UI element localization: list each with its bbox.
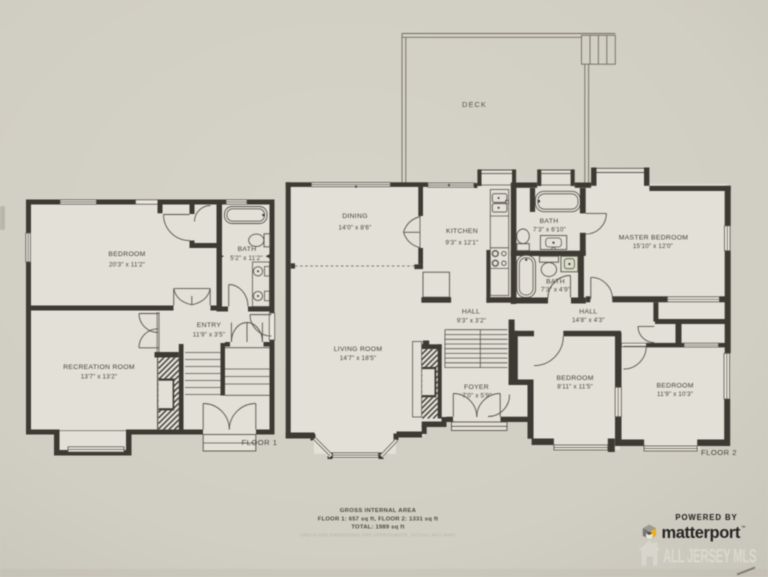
svg-text:BEDROOM: BEDROOM xyxy=(108,251,145,258)
svg-text:15'10" x 12'0": 15'10" x 12'0" xyxy=(633,243,673,250)
svg-text:FLOOR 1: FLOOR 1 xyxy=(242,438,278,447)
svg-text:5'2" x 11'2": 5'2" x 11'2" xyxy=(230,255,262,262)
svg-text:8'11" x 11'5": 8'11" x 11'5" xyxy=(557,384,593,391)
svg-text:BEDROOM: BEDROOM xyxy=(556,375,593,382)
svg-text:BATH: BATH xyxy=(546,279,565,286)
svg-text:DINING: DINING xyxy=(342,213,368,220)
svg-text:KITCHEN: KITCHEN xyxy=(446,228,478,235)
svg-text:™: ™ xyxy=(741,525,746,530)
svg-text:RECREATION ROOM: RECREATION ROOM xyxy=(63,364,135,371)
svg-text:13'7" x 13'2": 13'7" x 13'2" xyxy=(81,374,118,381)
svg-text:20'3" x 11'2": 20'3" x 11'2" xyxy=(109,262,145,269)
svg-text:7'3" x 4'9": 7'3" x 4'9" xyxy=(541,287,570,294)
svg-text:ALL JERSEY MLS: ALL JERSEY MLS xyxy=(663,547,756,568)
svg-text:DECK: DECK xyxy=(462,100,487,109)
svg-text:LIVING ROOM: LIVING ROOM xyxy=(334,346,383,353)
svg-text:FLOOR 2: FLOOR 2 xyxy=(701,448,737,457)
svg-text:FOYER: FOYER xyxy=(464,384,489,391)
svg-text:HALL: HALL xyxy=(579,309,597,316)
svg-text:ENTRY: ENTRY xyxy=(197,322,222,329)
svg-text:BATH: BATH xyxy=(540,218,559,225)
svg-text:TOTAL: 1989 sq ft: TOTAL: 1989 sq ft xyxy=(351,524,404,530)
svg-text:7'0" x 5'9": 7'0" x 5'9" xyxy=(462,392,491,399)
svg-text:11'9" x 10'3": 11'9" x 10'3" xyxy=(657,391,693,398)
svg-text:FLOOR 1: 657 sq ft, FLOOR 2: 1: FLOOR 1: 657 sq ft, FLOOR 2: 1331 sq ft xyxy=(318,516,438,522)
svg-text:MASTER BEDROOM: MASTER BEDROOM xyxy=(619,235,689,242)
svg-text:POWERED BY: POWERED BY xyxy=(675,513,737,522)
svg-text:14'0" x 8'6": 14'0" x 8'6" xyxy=(339,225,372,232)
svg-text:9'3" x 3'2": 9'3" x 3'2" xyxy=(457,318,486,325)
svg-text:7'3" x 6'10": 7'3" x 6'10" xyxy=(533,227,566,234)
svg-text:9'3" x 12'1": 9'3" x 12'1" xyxy=(446,240,479,247)
svg-text:11'9" x 3'5": 11'9" x 3'5" xyxy=(193,332,225,339)
svg-text:HALL: HALL xyxy=(462,309,480,316)
svg-text:GROSS INTERNAL AREA: GROSS INTERNAL AREA xyxy=(340,508,417,514)
svg-text:AREAS AND DIMENSIONS ARE APPRO: AREAS AND DIMENSIONS ARE APPROXIMATE, AC… xyxy=(300,533,456,538)
svg-text:matterport: matterport xyxy=(662,524,741,542)
svg-text:14'7" x 18'5": 14'7" x 18'5" xyxy=(340,355,377,362)
svg-text:14'8" x 4'3": 14'8" x 4'3" xyxy=(572,317,605,324)
svg-text:BEDROOM: BEDROOM xyxy=(656,383,693,390)
svg-text:BATH: BATH xyxy=(238,246,257,253)
